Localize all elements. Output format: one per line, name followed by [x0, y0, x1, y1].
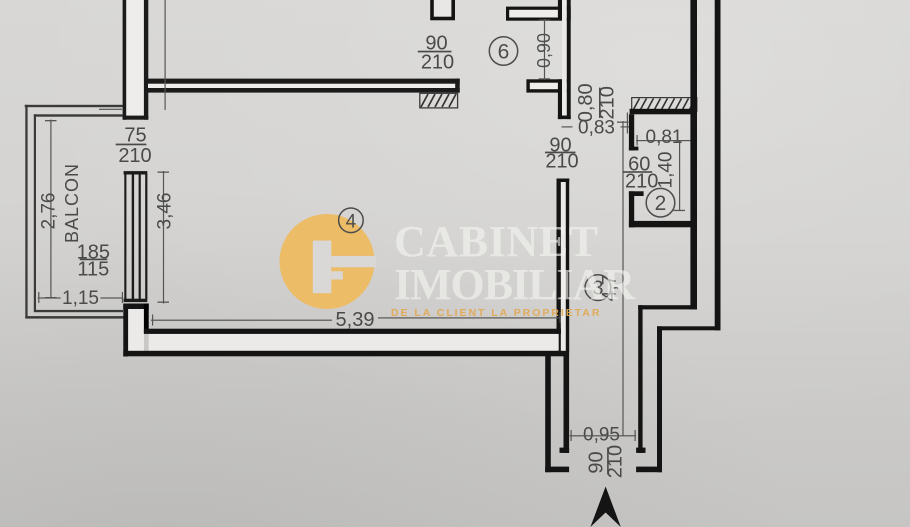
- svg-text:2,76: 2,76: [39, 193, 60, 230]
- svg-text:BALCON: BALCON: [62, 163, 82, 243]
- svg-text:210: 210: [118, 145, 151, 167]
- svg-text:0,81: 0,81: [646, 127, 683, 148]
- svg-text:115: 115: [77, 258, 109, 280]
- svg-text:0,95: 0,95: [583, 425, 620, 446]
- svg-text:IMOBILIAR: IMOBILIAR: [394, 260, 639, 309]
- svg-text:1,15: 1,15: [62, 288, 99, 309]
- svg-text:0,90: 0,90: [534, 33, 554, 68]
- svg-text:6: 6: [498, 41, 510, 64]
- svg-text:DE LA CLIENT LA PROPRIETAR: DE LA CLIENT LA PROPRIETAR: [391, 307, 602, 319]
- svg-text:CABINET: CABINET: [394, 217, 604, 266]
- svg-text:5,39: 5,39: [336, 309, 375, 331]
- svg-text:75: 75: [124, 125, 146, 147]
- svg-text:3,46: 3,46: [155, 193, 176, 230]
- svg-text:1,40: 1,40: [656, 152, 677, 189]
- svg-text:0,83: 0,83: [578, 118, 615, 139]
- svg-text:210: 210: [545, 151, 578, 173]
- svg-text:0,80: 0,80: [575, 83, 597, 122]
- svg-text:4: 4: [346, 211, 357, 232]
- svg-text:2: 2: [655, 192, 667, 215]
- svg-text:210: 210: [421, 52, 454, 74]
- svg-text:210: 210: [625, 170, 658, 192]
